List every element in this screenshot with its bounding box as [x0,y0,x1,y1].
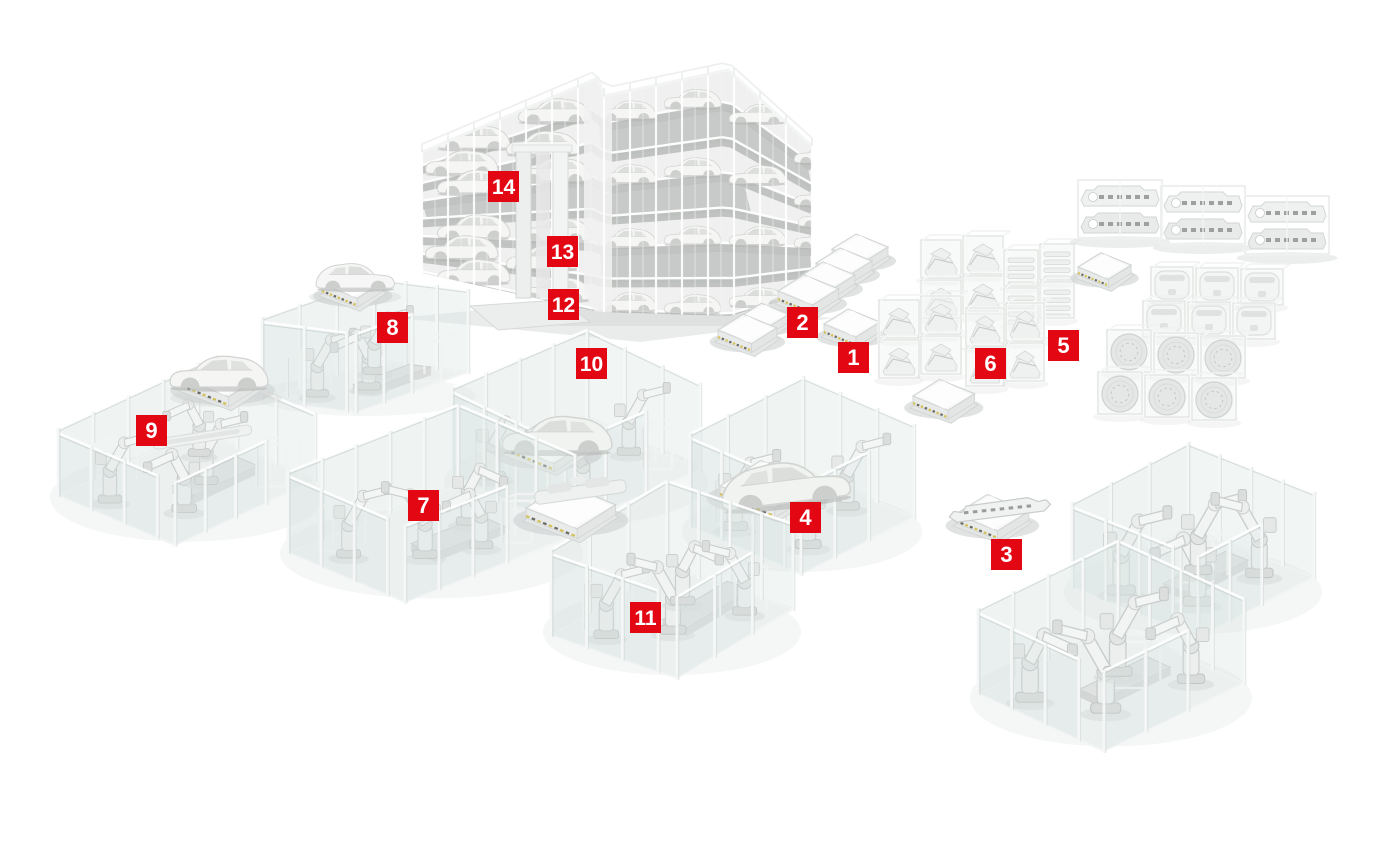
svg-text:3: 3 [1000,542,1012,567]
svg-text:12: 12 [552,294,575,317]
svg-text:11: 11 [634,607,657,630]
svg-text:7: 7 [417,493,429,518]
svg-text:8: 8 [386,315,398,340]
svg-text:4: 4 [799,505,812,530]
svg-text:13: 13 [551,241,574,264]
svg-text:2: 2 [796,310,808,335]
svg-text:6: 6 [984,351,996,376]
svg-text:9: 9 [145,418,157,443]
svg-text:10: 10 [580,353,603,376]
svg-text:5: 5 [1057,333,1069,358]
svg-text:14: 14 [492,176,516,199]
svg-text:1: 1 [847,345,859,370]
